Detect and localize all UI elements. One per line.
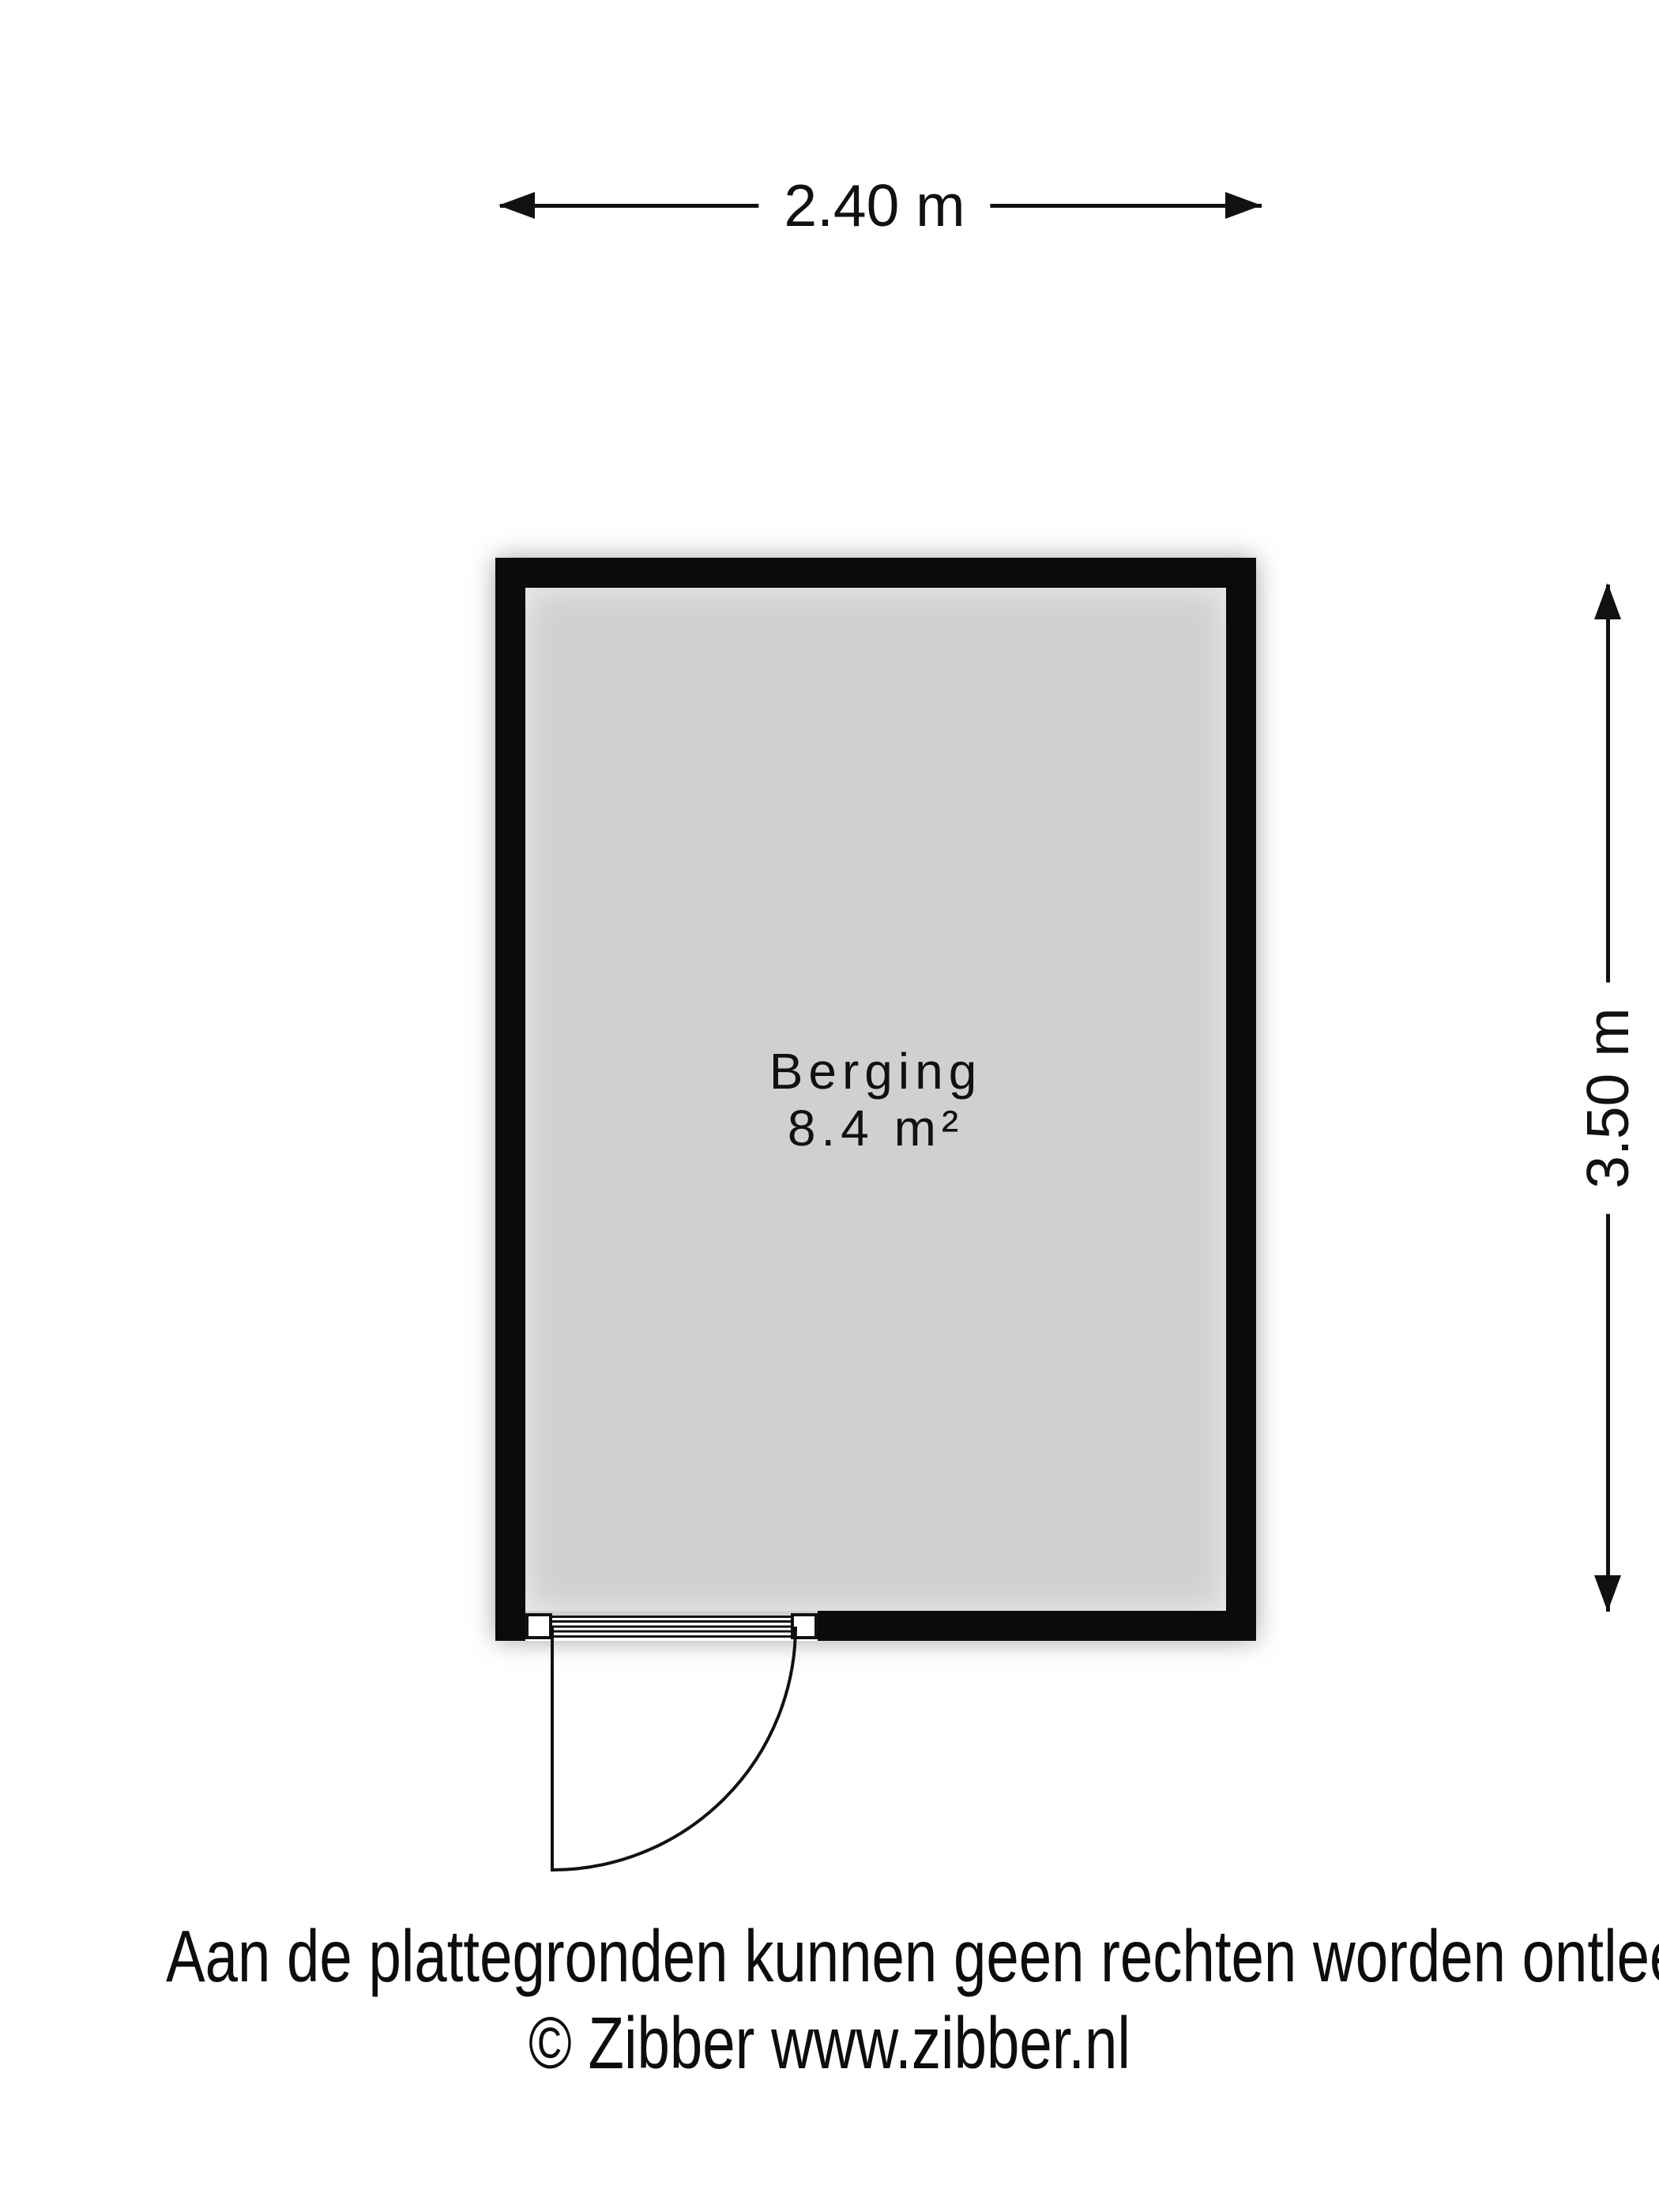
arrowhead-down-icon <box>1594 1575 1621 1612</box>
copyright-text: © Zibber www.zibber.nl <box>166 1999 1493 2086</box>
room-label: Berging 8.4 m² <box>769 1043 983 1157</box>
door-swing-arc-icon <box>550 1624 799 1873</box>
room-walls: Berging 8.4 m² <box>495 558 1256 1641</box>
width-dimension-label: 2.40 m <box>758 174 990 237</box>
arrowhead-right-icon <box>1225 192 1262 219</box>
height-dimension-label: 3.50 m <box>1576 982 1639 1213</box>
room-area: 8.4 m² <box>769 1100 983 1157</box>
disclaimer-text: Aan de plattegronden kunnen geen rechten… <box>166 1913 1493 1999</box>
room-name: Berging <box>769 1043 983 1100</box>
floorplan-canvas: 2.40 m Berging 8.4 m² 3.50 m Aan de plat… <box>0 0 1659 2212</box>
footer: Aan de plattegronden kunnen geen rechten… <box>166 1913 1493 2086</box>
arrowhead-up-icon <box>1594 583 1621 619</box>
arrowhead-left-icon <box>498 192 535 219</box>
door-jamb-left <box>525 1613 552 1639</box>
room-floor: Berging 8.4 m² <box>525 588 1226 1611</box>
